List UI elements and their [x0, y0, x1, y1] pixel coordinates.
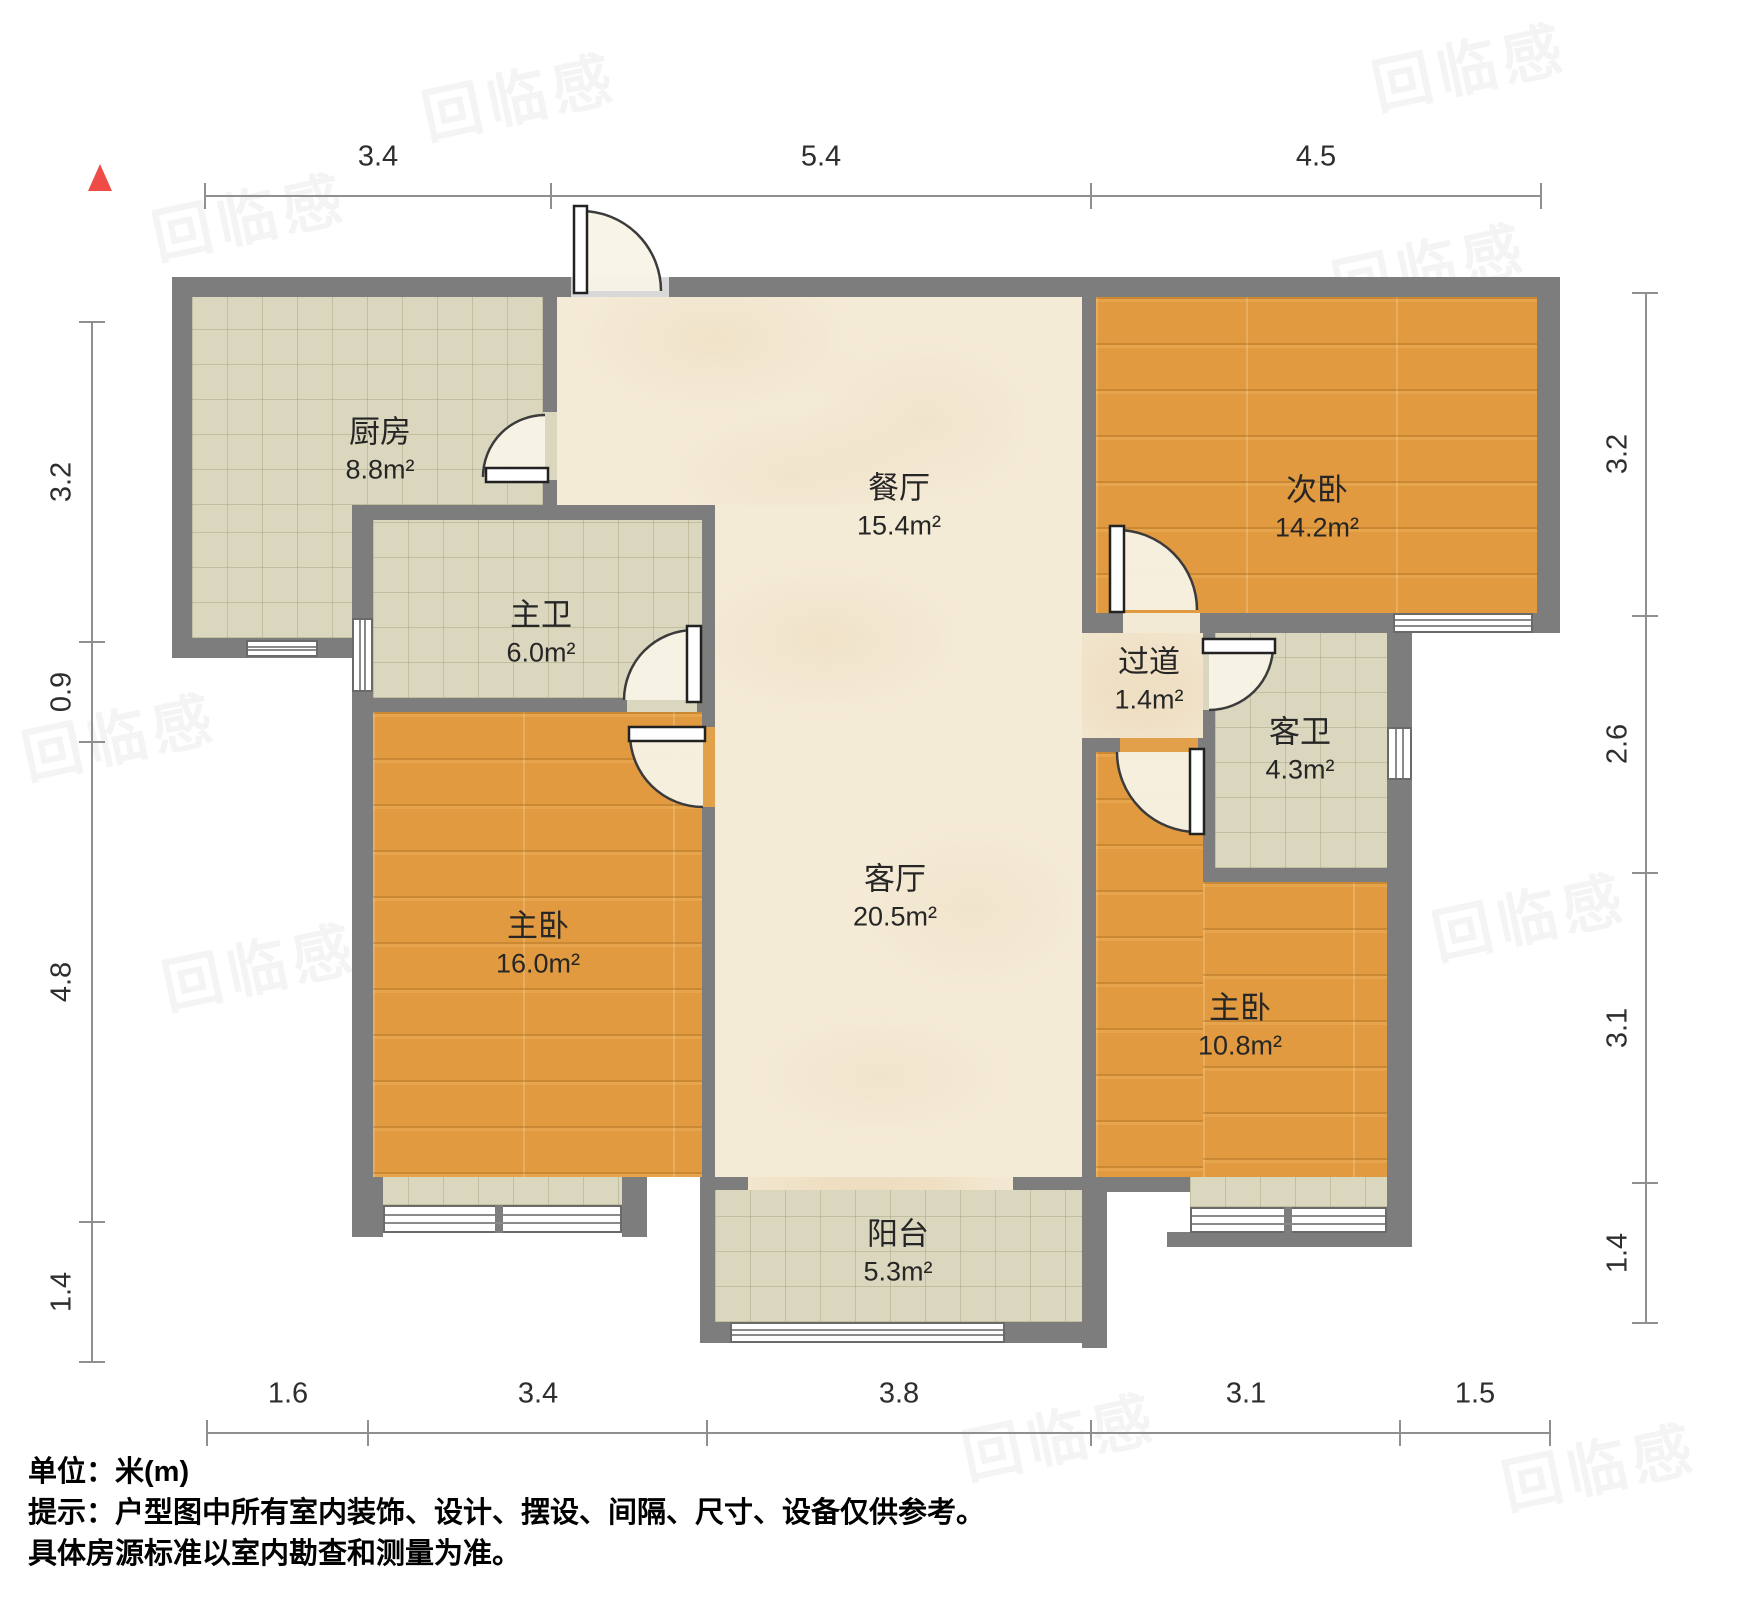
wall-living-west	[702, 807, 715, 1177]
wall-kitchen-right	[543, 297, 557, 412]
dim-top-3: 4.5	[1296, 141, 1336, 174]
dim-line-right	[1645, 293, 1647, 1323]
wall-guest-bath-left	[1203, 633, 1215, 643]
dim-tick	[79, 641, 105, 643]
room-label-master-bedroom-left: 主卧 16.0m²	[496, 906, 580, 981]
room-name: 主卧	[1198, 988, 1282, 1028]
dim-tick	[1540, 183, 1542, 209]
north-arrow-icon	[88, 164, 112, 191]
room-area: 6.0m²	[506, 636, 575, 671]
room-name: 次卧	[1275, 470, 1359, 510]
dim-right-1: 3.2	[1602, 434, 1635, 474]
dim-right-3: 3.1	[1602, 1008, 1635, 1048]
second-bedroom-floor	[1096, 297, 1537, 613]
wall-west	[352, 712, 373, 1237]
unit-note: 单位：米(m)	[28, 1452, 985, 1493]
dim-top-2: 5.4	[801, 141, 841, 174]
guest-bath-window	[1387, 727, 1412, 780]
dim-left-1: 3.2	[46, 462, 79, 502]
dim-tick	[1090, 1420, 1092, 1446]
room-label-living: 客厅 20.5m²	[853, 859, 937, 934]
room-label-kitchen: 厨房 8.8m²	[345, 412, 414, 487]
guest-bath-door-opening	[1203, 643, 1215, 710]
room-name: 主卫	[506, 595, 575, 635]
wall-master-bath-bottom	[352, 698, 627, 712]
master-bedroom-left-bay-window	[383, 1205, 622, 1233]
dim-bottom-1: 1.6	[268, 1378, 308, 1411]
watermark: 回临感	[1493, 1400, 1705, 1526]
dim-bottom-2: 3.4	[518, 1378, 558, 1411]
dim-tick	[367, 1420, 369, 1446]
bay-window-sill	[373, 1177, 647, 1205]
living-floor	[715, 505, 1082, 1177]
room-name: 客厅	[853, 859, 937, 899]
dim-right-4: 1.4	[1602, 1233, 1635, 1273]
wall-master2-top	[1082, 738, 1120, 752]
entry-threshold	[571, 277, 669, 297]
wall-master-bath-top	[352, 505, 715, 520]
wall-bay-post	[352, 1177, 383, 1237]
dim-left-3: 4.8	[46, 962, 79, 1002]
room-label-guest-bath: 客卫 4.3m²	[1265, 712, 1334, 787]
wall-living-east	[1082, 747, 1096, 1190]
second-bedroom-door-opening	[1123, 613, 1200, 633]
dim-tick	[706, 1420, 708, 1446]
wall-master2-bottom	[1093, 1177, 1190, 1192]
room-area: 15.4m²	[857, 509, 941, 544]
wall-bay-post	[622, 1177, 647, 1237]
dim-bottom-3: 3.8	[879, 1378, 919, 1411]
second-bedroom-window	[1393, 613, 1533, 633]
disclaimer-line-1: 提示：户型图中所有室内装饰、设计、摆设、间隔、尺寸、设备仅供参考。	[28, 1493, 985, 1534]
dim-line-left	[91, 322, 93, 1362]
dim-tick	[79, 741, 105, 743]
dim-tick	[1632, 292, 1658, 294]
dim-tick	[1549, 1420, 1551, 1446]
dim-bottom-5: 1.5	[1455, 1378, 1495, 1411]
room-area: 4.3m²	[1265, 753, 1334, 788]
room-area: 10.8m²	[1198, 1029, 1282, 1064]
wall-balcony-stub	[1013, 1177, 1082, 1190]
dining-floor	[557, 297, 1082, 505]
dim-top-1: 3.4	[358, 141, 398, 174]
dim-right-2: 2.6	[1602, 724, 1635, 764]
disclaimer-line-2: 具体房源标准以室内勘查和测量为准。	[28, 1534, 985, 1575]
dim-tick	[204, 183, 206, 209]
dim-tick	[206, 1420, 208, 1446]
dim-left-2: 0.9	[46, 672, 79, 712]
watermark: 回临感	[153, 900, 365, 1026]
room-name: 厨房	[345, 412, 414, 452]
window-mullion	[1284, 1207, 1292, 1233]
room-label-master-bedroom-right: 主卧 10.8m²	[1198, 988, 1282, 1063]
watermark: 回临感	[413, 30, 625, 156]
master-bath-door-opening	[627, 698, 697, 712]
room-name: 主卧	[496, 906, 580, 946]
wall-kitchen-left	[172, 297, 192, 658]
master-bedroom-right-floor	[1096, 752, 1203, 1177]
wall-master2-bottom-outer	[1167, 1232, 1387, 1247]
bay-window-sill	[1190, 1177, 1387, 1207]
room-area: 8.8m²	[345, 453, 414, 488]
room-area: 16.0m²	[496, 947, 580, 982]
dim-tick	[1632, 615, 1658, 617]
room-name: 客卫	[1265, 712, 1334, 752]
wall-top	[172, 277, 1560, 297]
wall-balcony-stub	[715, 1177, 748, 1190]
room-name: 餐厅	[857, 468, 941, 508]
kitchen-floor	[192, 505, 352, 638]
dim-tick	[79, 1221, 105, 1223]
balcony-passage	[748, 1177, 1013, 1190]
room-area: 5.3m²	[863, 1255, 932, 1290]
balcony-window	[730, 1322, 1005, 1343]
wall-guest-bath-left	[1203, 710, 1215, 868]
dim-line-top	[205, 195, 1541, 197]
dim-left-4: 1.4	[46, 1272, 79, 1312]
wall-living-east	[1082, 297, 1096, 633]
dim-tick	[1632, 1322, 1658, 1324]
watermark: 回临感	[1423, 850, 1635, 976]
wall-east	[1387, 633, 1412, 1247]
kitchen-door-opening	[543, 412, 557, 480]
wall-second-bedroom-right	[1537, 277, 1560, 633]
dim-tick	[1632, 1182, 1658, 1184]
room-area: 14.2m²	[1275, 511, 1359, 546]
wall-living-west	[702, 505, 715, 727]
room-label-master-bath: 主卫 6.0m²	[506, 595, 575, 670]
room-name: 过道	[1114, 642, 1183, 682]
wall-balcony-left	[700, 1177, 715, 1343]
master-bath-window	[352, 618, 373, 692]
dim-bottom-4: 3.1	[1226, 1378, 1266, 1411]
dim-tick	[79, 321, 105, 323]
room-label-balcony: 阳台 5.3m²	[863, 1214, 932, 1289]
dim-tick	[1090, 183, 1092, 209]
window-mullion	[495, 1205, 503, 1233]
watermark: 回临感	[143, 150, 355, 276]
wall-master2-top	[1198, 738, 1215, 752]
wall-guest-bath-bottom	[1203, 868, 1412, 882]
room-area: 20.5m²	[853, 900, 937, 935]
watermark: 回临感	[1363, 0, 1575, 126]
dim-tick	[550, 183, 552, 209]
dim-tick	[1632, 872, 1658, 874]
kitchen-window	[246, 640, 318, 657]
room-label-hallway: 过道 1.4m²	[1114, 642, 1183, 717]
footnotes: 单位：米(m) 提示：户型图中所有室内装饰、设计、摆设、间隔、尺寸、设备仅供参考…	[28, 1452, 985, 1576]
master-bedroom-left-door-opening	[702, 727, 715, 807]
room-area: 1.4m²	[1114, 683, 1183, 718]
master-bedroom-right-door-opening	[1120, 738, 1198, 752]
room-label-dining: 餐厅 15.4m²	[857, 468, 941, 543]
dim-tick	[1399, 1420, 1401, 1446]
room-label-second-bedroom: 次卧 14.2m²	[1275, 470, 1359, 545]
dim-tick	[79, 1361, 105, 1363]
floor-plan: 回临感 回临感 回临感 回临感 回临感 回临感 回临感 回临感 回临感 回临感	[0, 0, 1747, 1623]
dim-line-bottom	[207, 1432, 1550, 1434]
room-name: 阳台	[863, 1214, 932, 1254]
master-bedroom-right-bay-window	[1190, 1207, 1387, 1233]
